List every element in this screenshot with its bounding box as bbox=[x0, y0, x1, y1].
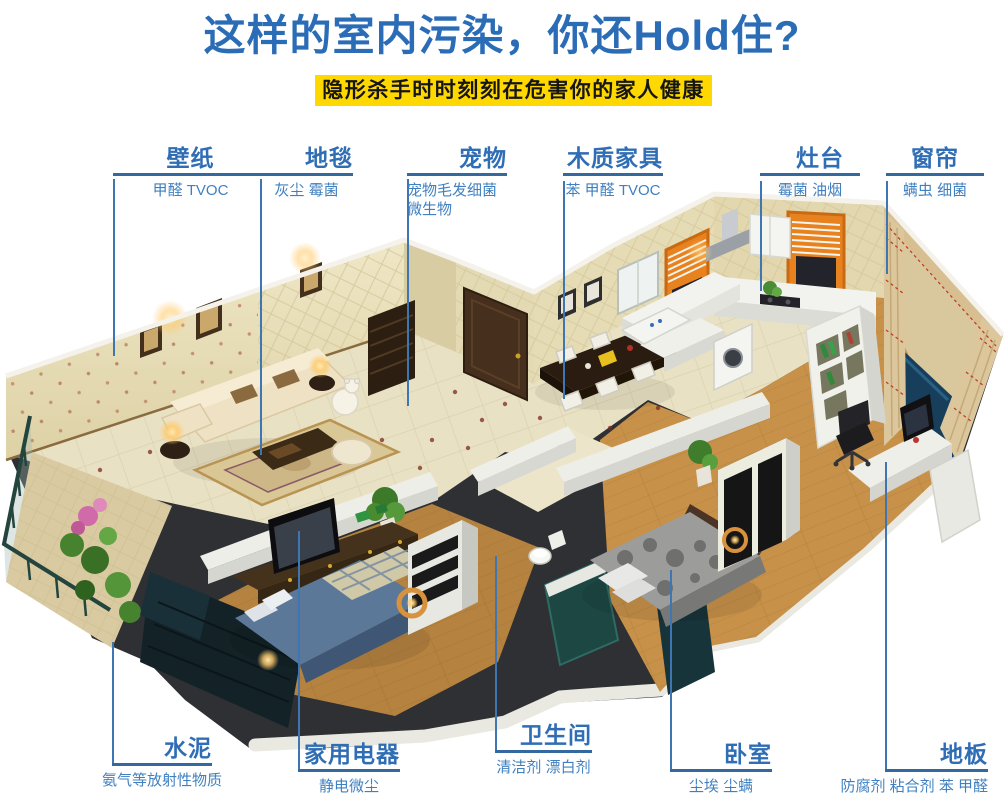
callout-cement-pollutants: 氨气等放射性物质 bbox=[82, 766, 242, 790]
callout-cement-title: 水泥 bbox=[112, 735, 212, 766]
callout-floor-pollutants: 防腐剂 粘合剂 苯 甲醛 bbox=[825, 772, 988, 796]
callout-bathroom: 卫生间 清洁剂 漂白剂 bbox=[495, 722, 592, 777]
callout-bedroom-pollutants: 尘埃 尘螨 bbox=[670, 772, 772, 796]
callout-carpet-pollutants: 灰尘 霉菌 bbox=[260, 176, 353, 200]
ottoman bbox=[332, 439, 372, 465]
callout-carpet-title: 地毯 bbox=[260, 145, 353, 176]
callout-floor: 地板 防腐剂 粘合剂 苯 甲醛 bbox=[885, 741, 988, 796]
warning-banner: 隐形杀手时时刻刻在危害你的家人健康 bbox=[315, 75, 712, 106]
callout-bathroom-pollutants: 清洁剂 漂白剂 bbox=[495, 753, 592, 777]
callout-curtain-title: 窗帘 bbox=[886, 145, 984, 176]
callout-wallpaper-title: 壁纸 bbox=[113, 145, 268, 176]
callout-cement: 水泥 氨气等放射性物质 bbox=[112, 735, 212, 790]
callout-curtain: 窗帘 螨虫 细菌 bbox=[886, 145, 984, 200]
callout-bedroom: 卧室 尘埃 尘螨 bbox=[670, 741, 772, 796]
callout-carpet: 地毯 灰尘 霉菌 bbox=[260, 145, 353, 200]
callout-wallpaper: 壁纸 甲醛 TVOC bbox=[113, 145, 268, 200]
callout-bathroom-title: 卫生间 bbox=[495, 722, 592, 753]
apartment-illustration bbox=[0, 0, 1004, 806]
callout-appliances-title: 家用电器 bbox=[298, 741, 400, 772]
callout-stove-title: 灶台 bbox=[760, 145, 860, 176]
callout-appliances: 家用电器 静电微尘 bbox=[298, 741, 400, 796]
callout-wallpaper-pollutants: 甲醛 TVOC bbox=[113, 176, 268, 200]
callout-stove: 灶台 霉菌 油烟 bbox=[760, 145, 860, 200]
callout-pet-pollutants: 宠物毛发细菌 微生物 bbox=[407, 176, 507, 219]
page-title: 这样的室内污染，你还Hold住? bbox=[0, 2, 1004, 63]
callout-floor-title: 地板 bbox=[885, 741, 988, 772]
poster-stage: 这样的室内污染，你还Hold住? 隐形杀手时时刻刻在危害你的家人健康 壁纸 甲醛… bbox=[0, 0, 1004, 806]
callout-wood-furniture: 木质家具 苯 甲醛 TVOC bbox=[563, 145, 663, 200]
kitchen-orange-window-2 bbox=[788, 212, 844, 296]
callout-appliances-pollutants: 静电微尘 bbox=[298, 772, 400, 796]
callout-pet-title: 宠物 bbox=[407, 145, 507, 176]
callout-wood-furniture-title: 木质家具 bbox=[563, 145, 663, 176]
callout-stove-pollutants: 霉菌 油烟 bbox=[760, 176, 860, 200]
callout-pet: 宠物 宠物毛发细菌 微生物 bbox=[407, 145, 507, 219]
callout-bedroom-title: 卧室 bbox=[670, 741, 772, 772]
callout-wood-furniture-pollutants: 苯 甲醛 TVOC bbox=[563, 176, 663, 200]
callout-curtain-pollutants: 螨虫 细菌 bbox=[886, 176, 984, 200]
